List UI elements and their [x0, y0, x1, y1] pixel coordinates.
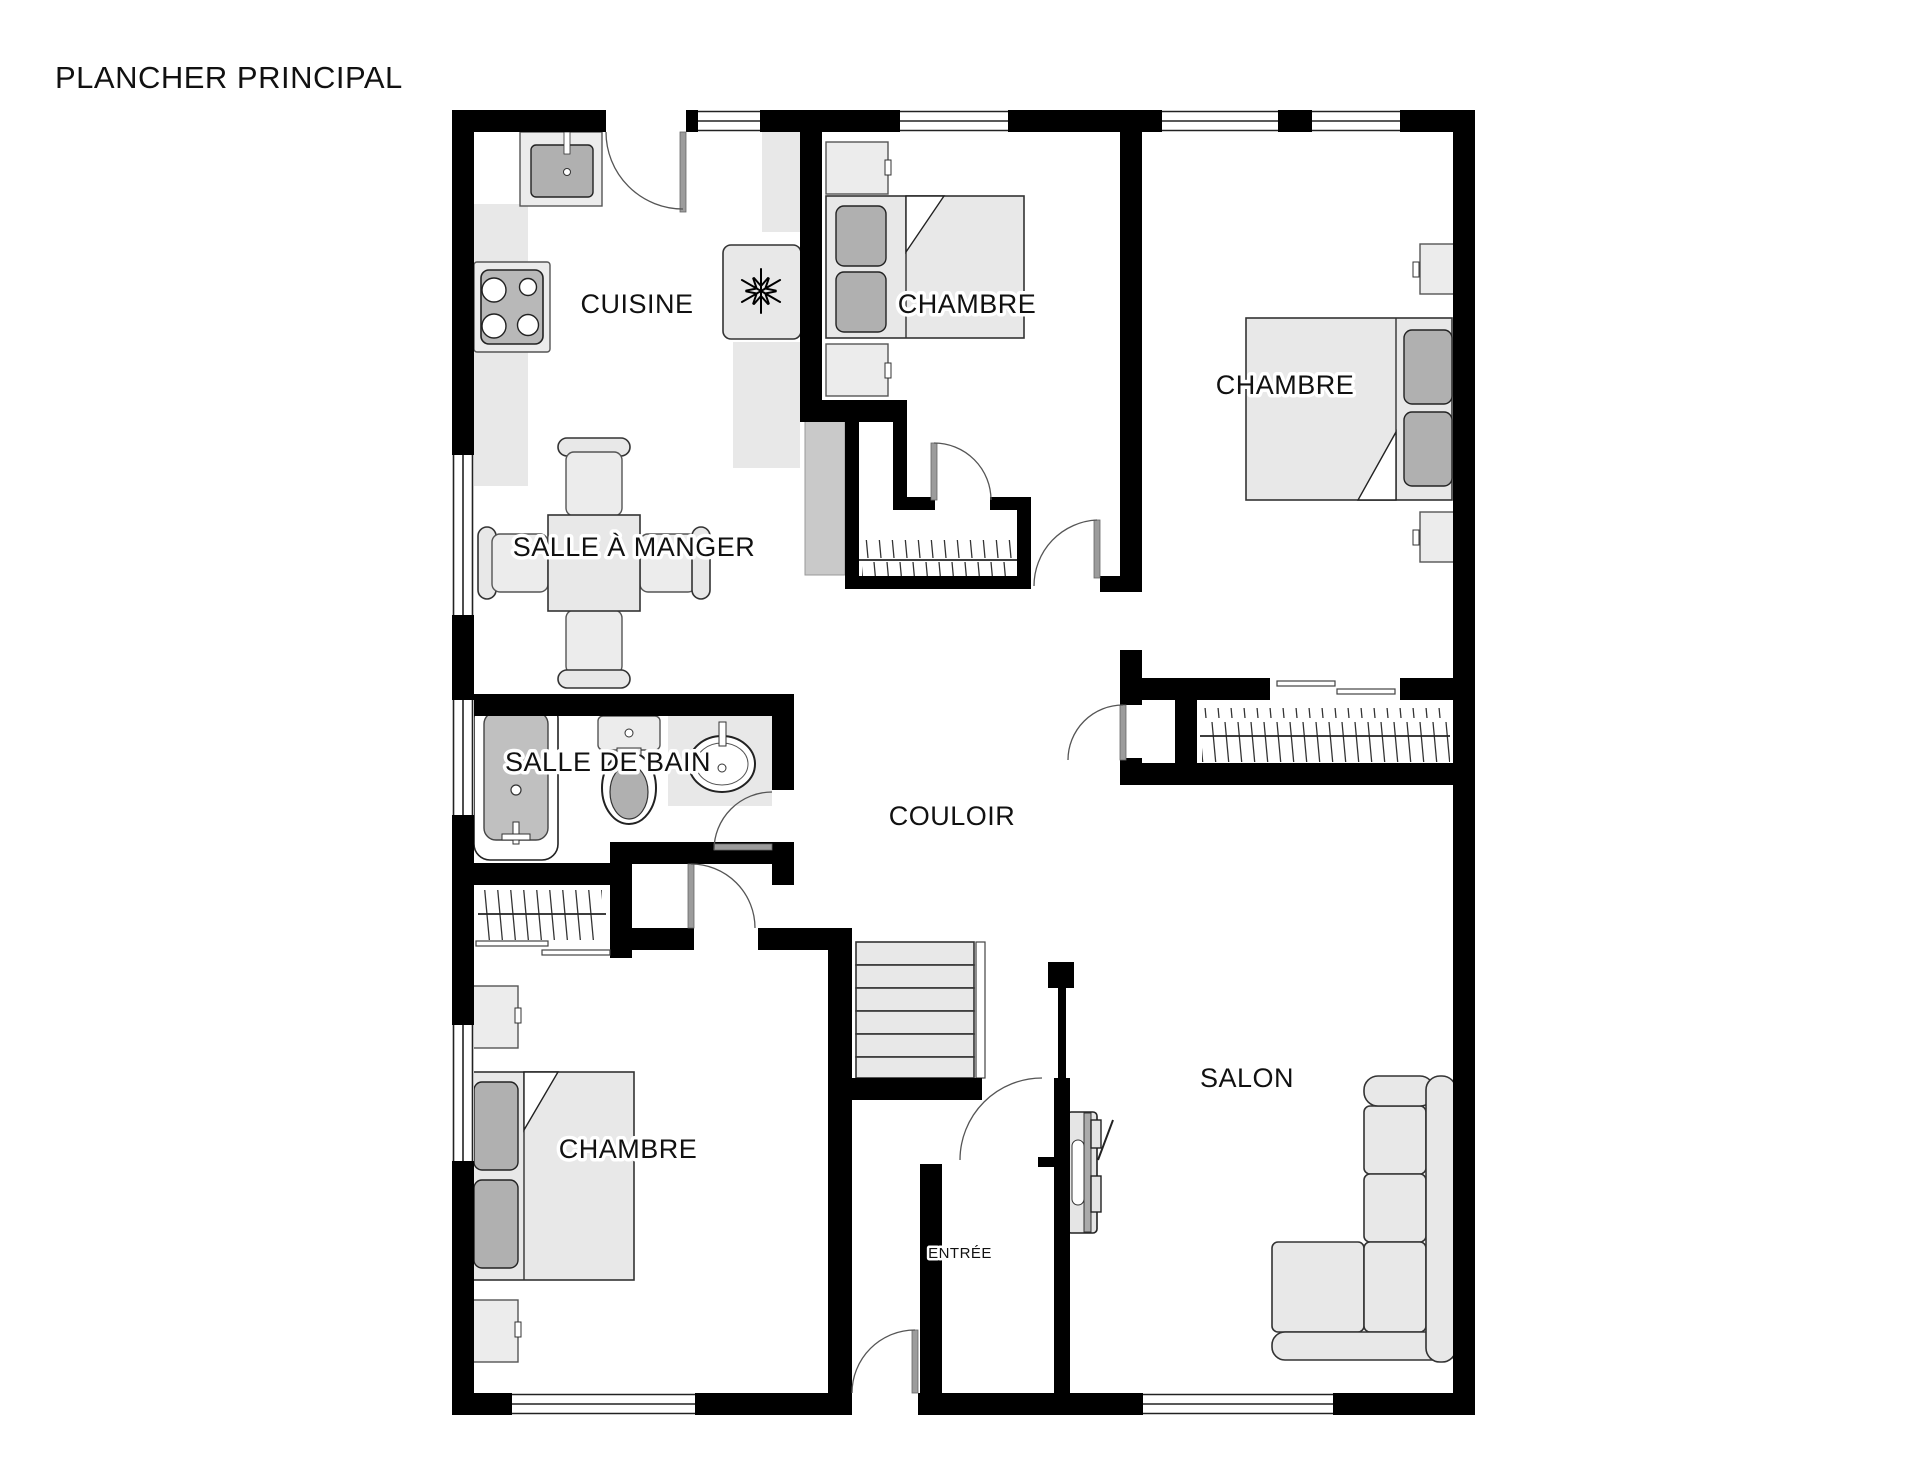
room-label-cuisine: CUISINE: [580, 289, 693, 319]
chair: [566, 452, 622, 516]
wall-post: [1048, 962, 1074, 988]
room-label-chambre-bottom: CHAMBRE: [559, 1134, 698, 1164]
closet-rod-top-bedroom: [859, 540, 1017, 577]
pillow: [474, 1180, 518, 1268]
room-label-salle-de-bain: SALLE DE BAIN: [505, 747, 711, 777]
page-title: PLANCHER PRINCIPAL: [55, 60, 403, 95]
nightstand: [826, 142, 888, 194]
pillow: [474, 1082, 518, 1170]
window: [452, 1025, 474, 1161]
burner-icon: [518, 315, 539, 336]
window: [512, 1393, 695, 1415]
pillow: [1404, 412, 1452, 486]
room-label-chambre-top: CHAMBRE: [898, 289, 1037, 319]
pillow: [836, 206, 886, 266]
closet-rod-bathroom-side: [478, 890, 606, 940]
window: [1162, 110, 1278, 132]
room-label-salle-a-manger: SALLE À MANGER: [513, 532, 756, 562]
chair: [558, 670, 630, 688]
floor-plan-page: PLANCHER PRINCIPAL CUISINE CHAMBRE CHAMB…: [0, 0, 1920, 1483]
wardrobe: [805, 415, 845, 575]
window: [900, 110, 1008, 132]
sliding-door-right-closet: [1270, 678, 1400, 700]
wall-outer-right: [1453, 110, 1475, 1415]
sofa-armrest: [1364, 1076, 1434, 1106]
wall-entree-divider: [920, 1164, 942, 1393]
sofa-seat: [1364, 1106, 1426, 1174]
wall-bathroom-top: [452, 694, 794, 716]
room-label-salon: SALON: [1200, 1063, 1294, 1093]
dining-table: [548, 515, 640, 611]
burner-icon: [482, 278, 506, 302]
pillow: [836, 272, 886, 332]
wall-kitchen-bedroom: [800, 110, 822, 422]
window: [1312, 110, 1400, 132]
wall-bedroom-entree: [828, 928, 852, 1415]
bathtub: [474, 702, 558, 860]
kitchen-sink: [520, 132, 602, 206]
drain-icon: [511, 785, 521, 795]
sofa-chaise: [1272, 1242, 1364, 1332]
burner-icon: [482, 314, 506, 338]
chair: [566, 610, 622, 674]
refrigerator: [723, 245, 801, 339]
nightstand: [1420, 244, 1454, 294]
window: [1143, 1393, 1333, 1415]
stove: [474, 262, 550, 352]
sofa-seat: [1364, 1242, 1426, 1332]
sofa-seat: [1364, 1174, 1426, 1242]
window: [452, 455, 474, 615]
nightstand: [826, 344, 888, 396]
window: [452, 700, 474, 815]
window: [698, 110, 760, 132]
room-label-couloir: COULOIR: [889, 801, 1016, 831]
nightstand: [1420, 512, 1454, 562]
closet-rod-right-bedroom: [1200, 708, 1450, 762]
stairs: [856, 942, 985, 1078]
wall-between-bedrooms: [1120, 110, 1142, 576]
stair-rail: [976, 942, 985, 1078]
pillow: [1404, 330, 1452, 404]
burner-icon: [520, 279, 537, 296]
faucet-icon: [513, 822, 519, 844]
wall-tv-partial: [1054, 1078, 1070, 1393]
floor-plan: PLANCHER PRINCIPAL CUISINE CHAMBRE CHAMB…: [0, 0, 1920, 1483]
room-label-chambre-right: CHAMBRE: [1216, 370, 1355, 400]
sofa-back: [1426, 1076, 1456, 1362]
faucet-icon: [564, 132, 570, 154]
faucet-icon: [719, 722, 726, 746]
room-label-entree: ENTRÉE: [928, 1245, 992, 1262]
